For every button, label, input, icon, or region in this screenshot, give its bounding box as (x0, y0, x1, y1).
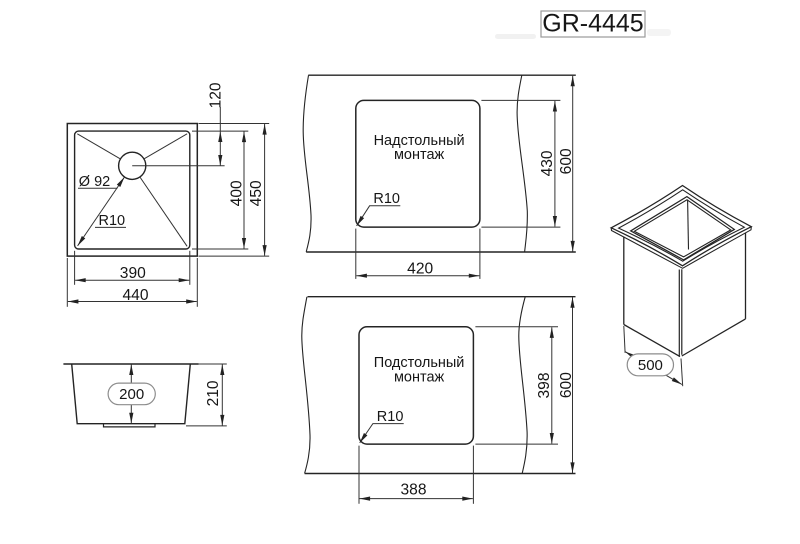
svg-text:398: 398 (536, 372, 553, 398)
svg-text:200: 200 (119, 386, 144, 403)
svg-text:R10: R10 (377, 409, 404, 425)
svg-text:388: 388 (400, 481, 426, 498)
svg-text:120: 120 (208, 82, 225, 108)
svg-text:600: 600 (558, 148, 575, 174)
svg-text:500: 500 (638, 357, 663, 374)
svg-text:400: 400 (229, 180, 246, 206)
svg-text:600: 600 (558, 372, 575, 398)
svg-text:GR-4445: GR-4445 (542, 10, 643, 38)
svg-text:420: 420 (407, 260, 433, 277)
svg-text:450: 450 (248, 180, 265, 206)
svg-text:монтаж: монтаж (394, 147, 445, 163)
svg-text:монтаж: монтаж (394, 369, 445, 385)
svg-text:440: 440 (122, 287, 148, 304)
svg-text:430: 430 (539, 150, 556, 176)
svg-text:210: 210 (205, 380, 222, 406)
svg-text:Ø 92: Ø 92 (79, 174, 110, 190)
svg-text:390: 390 (120, 265, 146, 282)
svg-text:R10: R10 (373, 191, 400, 207)
svg-text:R10: R10 (99, 213, 126, 229)
